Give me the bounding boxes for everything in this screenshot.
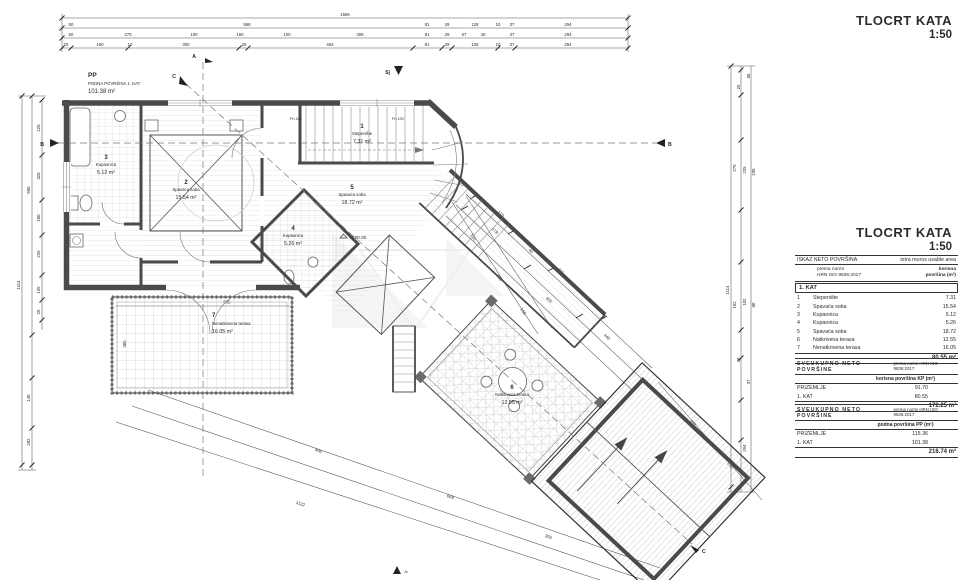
dim-label: 25 bbox=[64, 42, 69, 47]
table-norm: prema normi HRN ISO 9836:2017 bbox=[894, 361, 956, 373]
dim-label: 29 bbox=[445, 42, 450, 47]
dim-label: 308 bbox=[356, 32, 364, 37]
washer bbox=[70, 234, 83, 247]
sheet-scale: 1:50 bbox=[856, 29, 952, 42]
dim-label: 37 bbox=[510, 32, 515, 37]
sink bbox=[308, 257, 318, 267]
dim-label: 37 bbox=[746, 379, 751, 384]
table-row: 2Spavaća soba15.54 bbox=[795, 302, 958, 310]
section-flag-a bbox=[205, 58, 213, 63]
dim-label: 1114 bbox=[725, 285, 730, 295]
dim-label: 294 bbox=[564, 22, 572, 27]
svg-text:18.72 m²: 18.72 m² bbox=[342, 200, 363, 206]
north-label: Sj bbox=[385, 70, 390, 76]
dim-label: 275 bbox=[732, 164, 737, 172]
terrace-7 bbox=[112, 297, 292, 393]
dim-label: 139 bbox=[36, 286, 41, 294]
dim-label: 50 bbox=[69, 32, 74, 37]
svg-text:7.31 m²: 7.31 m² bbox=[353, 139, 371, 145]
dim-label: 550 bbox=[26, 186, 31, 194]
table-norm: prema normi HRN ISO 9836:2017 bbox=[894, 407, 956, 419]
dim-label: 160 bbox=[96, 42, 104, 47]
sheet-title: TLOCRT KATA bbox=[856, 226, 952, 241]
pp-sub: PODNA POVRŠINA 1. KAT bbox=[88, 81, 141, 86]
parapet-note: Pn 100 bbox=[290, 117, 302, 121]
dim-label: 38 bbox=[736, 357, 741, 362]
section-marker-c-bottom: C bbox=[702, 549, 706, 555]
table-row: 5Spavaća soba18.72 bbox=[795, 327, 958, 335]
pp-area: 101.38 m² bbox=[88, 89, 115, 95]
dimension-strip-right: 50 25 275 225 235 192 102 80 38 37 294 1… bbox=[725, 64, 756, 493]
svg-text:5.26 m²: 5.26 m² bbox=[284, 241, 302, 247]
toilet bbox=[80, 195, 92, 211]
dim-ticks bbox=[60, 16, 631, 51]
table-row: PRIZEMLJE115.36 bbox=[795, 430, 958, 438]
dim-label: 50 bbox=[746, 73, 751, 78]
dim-label: 10 bbox=[128, 42, 133, 47]
svg-text:Spavaća soba: Spavaća soba bbox=[172, 187, 200, 192]
bottom-marker-label: Jz bbox=[403, 570, 408, 574]
dim-label: 160 bbox=[236, 32, 244, 37]
dim-label: 37 bbox=[510, 42, 515, 47]
svg-text:Spavaća soba: Spavaća soba bbox=[338, 192, 366, 197]
section-flag-c-top bbox=[179, 76, 188, 86]
dim-label: 225 bbox=[742, 166, 747, 174]
dim-label: 25 bbox=[242, 42, 247, 47]
dim-label: 10 bbox=[496, 22, 501, 27]
section-marker-c-top: C bbox=[172, 74, 176, 80]
table-row: 1. KAT101.38 bbox=[795, 438, 958, 446]
table-row: 1. KAT80.55 bbox=[795, 392, 958, 400]
dim-label: 463 bbox=[326, 42, 334, 47]
section-marker-b-right: B bbox=[668, 142, 672, 148]
dim-label: 81 bbox=[425, 22, 430, 27]
dim-label: 100 bbox=[36, 214, 41, 222]
dim-label: 100 bbox=[190, 32, 198, 37]
dim-label: 406 bbox=[314, 447, 323, 454]
dim-label: 270 bbox=[124, 32, 132, 37]
dimension-strip-top: 1586 50 958 81 29 128 10 37 294 50 270 1… bbox=[60, 12, 631, 52]
sheet-title-top: TLOCRT KATA 1:50 bbox=[856, 14, 952, 42]
floor-plan-sheet: 1586 50 958 81 29 128 10 37 294 50 270 1… bbox=[0, 0, 960, 580]
room-label-1: 1 Stepenište 7.31 m² bbox=[352, 124, 373, 145]
dim-label: 37 bbox=[510, 22, 515, 27]
dim-label: 355 bbox=[544, 533, 553, 540]
dim-label: 225 bbox=[36, 124, 41, 132]
area-table-pp: SVEUKUPNO NETO POVRŠINE prema normi HRN … bbox=[795, 404, 958, 458]
svg-text:16.05 m²: 16.05 m² bbox=[212, 329, 233, 335]
svg-text:Kupaonica: Kupaonica bbox=[283, 233, 304, 238]
dim-label: 40 bbox=[481, 32, 486, 37]
elevation-label: +290.00 bbox=[349, 235, 367, 241]
dim-label: 668 bbox=[446, 493, 455, 500]
dim-label: 1114 bbox=[16, 280, 21, 290]
dim-label: 262 bbox=[26, 438, 31, 446]
dim-label: 294 bbox=[564, 32, 572, 37]
dim-label: 958 bbox=[243, 22, 251, 27]
table-row: 1Stepenište7.31 bbox=[795, 294, 958, 302]
dim-label: 80 bbox=[751, 302, 756, 307]
svg-text:Natkrivena terasa: Natkrivena terasa bbox=[495, 392, 529, 397]
svg-text:Nenatkrivena terasa: Nenatkrivena terasa bbox=[212, 321, 251, 326]
table-row: 6Natkrivena terasa12.55 bbox=[795, 336, 958, 344]
dim-label: 29 bbox=[445, 22, 450, 27]
section-flag-b-left bbox=[50, 139, 59, 147]
north-icon bbox=[394, 66, 403, 75]
svg-text:Kupaonica: Kupaonica bbox=[96, 162, 117, 167]
dim-label: 128 bbox=[471, 42, 479, 47]
section-marker-a: A bbox=[192, 54, 196, 60]
dim-label: 81 bbox=[425, 32, 430, 37]
table-col: podna površina PP (m²) bbox=[795, 420, 958, 430]
table-row: 3Kupaonica5.12 bbox=[795, 311, 958, 319]
sink bbox=[115, 111, 126, 122]
dim-label: 225 bbox=[36, 250, 41, 258]
dim-label: 67 bbox=[462, 32, 467, 37]
dim-label: 294 bbox=[564, 42, 572, 47]
dim-label: 25 bbox=[36, 309, 41, 314]
sheet-scale: 1:50 bbox=[856, 241, 952, 254]
dim-label: 102 bbox=[742, 298, 747, 306]
dim-label: 320 bbox=[36, 172, 41, 180]
table-total: 216.74 m² bbox=[795, 447, 958, 458]
svg-text:12.55 m²: 12.55 m² bbox=[502, 400, 523, 406]
dim-label: 25 bbox=[736, 84, 741, 89]
dim-label: 128 bbox=[471, 22, 479, 27]
dim-label: 10 bbox=[496, 42, 501, 47]
table-col: korisna bbox=[939, 267, 956, 272]
table-header: ISKAZ NETO POVRŠINA bbox=[797, 257, 857, 263]
table-row: PRIZEMLJE91.70 bbox=[795, 384, 958, 392]
dim-label: 140 bbox=[26, 394, 31, 402]
table-norm: HRN ISO 9836:2017 bbox=[817, 273, 861, 278]
section-flag-b-right bbox=[656, 139, 665, 147]
area-table-neto: ISKAZ NETO POVRŠINA intra muros usable a… bbox=[795, 255, 958, 364]
dim-label: 150 bbox=[519, 307, 527, 316]
section-marker-b-left: B bbox=[40, 142, 44, 148]
dimension-strip-left: 1114 550 225 320 100 225 139 25 140 262 bbox=[16, 94, 46, 471]
dim-label: 300 bbox=[182, 42, 190, 47]
exterior-stair bbox=[393, 326, 415, 392]
parapet-note: Pn 100 bbox=[392, 117, 404, 121]
dim-label: 100 bbox=[283, 32, 291, 37]
dim-label: 1122 bbox=[295, 500, 306, 508]
dim-label: 50 bbox=[69, 22, 74, 27]
dim-label: 192 bbox=[732, 301, 737, 309]
bottom-marker-icon bbox=[393, 566, 401, 574]
table-row: 7Nenatkrivena terasa16.05 bbox=[795, 344, 958, 352]
table-col: korisna površina KP (m²) bbox=[795, 374, 958, 384]
svg-text:15.54 m²: 15.54 m² bbox=[176, 195, 197, 201]
dim-label: 235 bbox=[751, 168, 756, 176]
table-header: SVEUKUPNO NETO POVRŠINE bbox=[797, 361, 894, 373]
dim-label: 1586 bbox=[340, 12, 350, 17]
dim-label: 440 bbox=[603, 333, 612, 342]
sheet-title: TLOCRT KATA bbox=[856, 14, 952, 29]
floor-fills bbox=[68, 105, 455, 316]
table-norm: prema normi bbox=[817, 267, 844, 272]
svg-text:Stepenište: Stepenište bbox=[352, 131, 373, 136]
pp-code: PP bbox=[88, 72, 97, 79]
svg-text:5.12 m²: 5.12 m² bbox=[97, 170, 115, 176]
table-header-en: intra muros usable area bbox=[900, 257, 956, 263]
sheet-title-mid: TLOCRT KATA 1:50 bbox=[856, 226, 952, 254]
svg-text:1: 1 bbox=[360, 124, 364, 130]
table-header: SVEUKUPNO NETO POVRŠINE bbox=[797, 407, 894, 419]
dim-label: 29 bbox=[445, 32, 450, 37]
table-col: površina (m²) bbox=[926, 273, 956, 278]
dim-label: 81 bbox=[425, 42, 430, 47]
dim-label: 294 bbox=[742, 444, 747, 452]
table-section: 1. KAT bbox=[795, 283, 958, 293]
table-row: 4Kupaonica5.26 bbox=[795, 319, 958, 327]
